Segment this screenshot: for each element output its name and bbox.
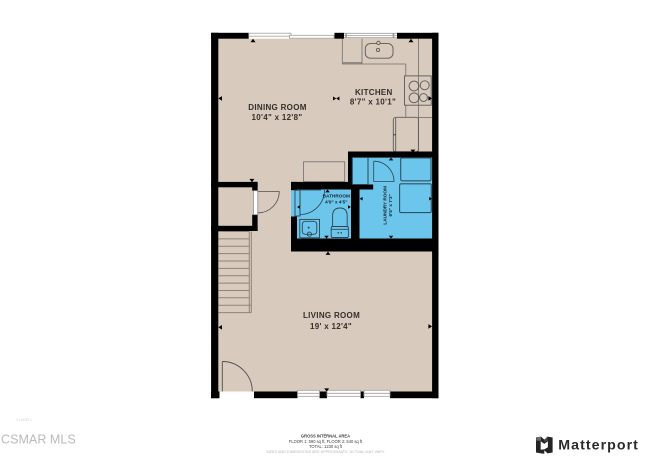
svg-text:LAUNDRY ROOM: LAUNDRY ROOM [382,186,387,225]
svg-text:10'4" x 12'8": 10'4" x 12'8" [252,113,303,122]
svg-text:CSMAR MLS: CSMAR MLS [1,433,76,447]
svg-text:4'9" x 4'5": 4'9" x 4'5" [325,200,347,205]
svg-text:6'5" x 7'3": 6'5" x 7'3" [388,194,393,216]
svg-text:KITCHEN: KITCHEN [355,88,393,97]
svg-text:FLOOR 1: 590 sq ft, FLOOR 2: 6: FLOOR 1: 590 sq ft, FLOOR 2: 640 sq ft [289,439,363,444]
svg-text:BATHROOM: BATHROOM [323,193,350,198]
svg-text:FLOOR 1: FLOOR 1 [17,418,32,422]
svg-text:19' x 12'4": 19' x 12'4" [310,322,352,331]
svg-text:DINING ROOM: DINING ROOM [248,103,306,112]
svg-text:Matterport: Matterport [558,438,639,454]
svg-text:8'7" x 10'1": 8'7" x 10'1" [350,98,396,107]
svg-text:GROSS INTERNAL AREA: GROSS INTERNAL AREA [301,433,350,438]
svg-text:LIVING ROOM: LIVING ROOM [303,311,360,320]
svg-text:SIZES AND DIMENSIONS ARE APPRO: SIZES AND DIMENSIONS ARE APPROXIMATE, AC… [266,450,385,454]
svg-text:TOTAL: 1230 sq ft: TOTAL: 1230 sq ft [309,444,343,449]
